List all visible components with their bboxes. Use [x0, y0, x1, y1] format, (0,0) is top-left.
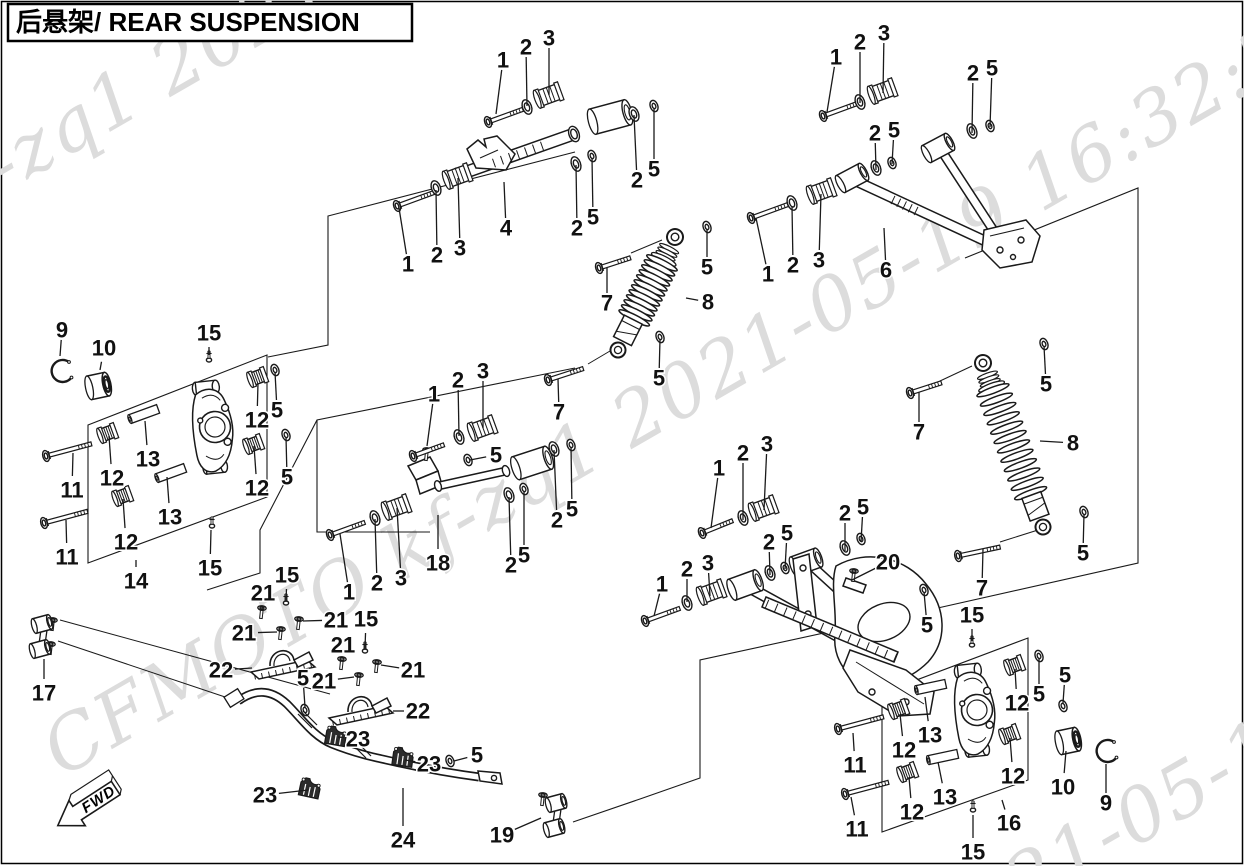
- callout-number: 20: [876, 550, 900, 575]
- callout-12: 12: [892, 714, 916, 763]
- callout-1: 1: [496, 48, 509, 115]
- callout-21: 21: [381, 658, 425, 683]
- callout-number: 21: [331, 633, 355, 658]
- callout-number: 5: [271, 398, 283, 423]
- callout-number: 5: [1077, 541, 1089, 566]
- callout-2: 2: [631, 115, 643, 193]
- callout-number: 1: [830, 45, 842, 70]
- callout-17: 17: [32, 659, 56, 706]
- callout-number: 21: [324, 608, 348, 633]
- part-circlip-right: [1097, 740, 1118, 762]
- callout-number: 7: [601, 291, 613, 316]
- callout-15: 15: [960, 603, 984, 642]
- callout-number: 1: [713, 456, 725, 481]
- part-bearing-left: [83, 372, 113, 401]
- callout-number: 5: [701, 255, 713, 280]
- callout-number: 14: [124, 569, 149, 594]
- callout-number: 5: [888, 118, 900, 143]
- callout-number: 6: [880, 258, 892, 283]
- callout-5: 5: [701, 229, 713, 280]
- part-end-link-left: [28, 614, 54, 659]
- callout-number: 7: [913, 420, 925, 445]
- callout-12: 12: [1005, 669, 1029, 716]
- callout-1: 1: [711, 456, 725, 529]
- callout-15: 15: [197, 321, 221, 356]
- callout-10: 10: [92, 336, 116, 371]
- callout-14: 14: [124, 560, 149, 594]
- callout-number: 2: [551, 508, 563, 533]
- callout-number: 2: [681, 557, 693, 582]
- callout-number: 5: [566, 497, 578, 522]
- callout-12: 12: [114, 499, 138, 555]
- callout-1: 1: [427, 382, 440, 447]
- callout-number: 4: [500, 216, 513, 241]
- part-lower-swing-arm: [725, 547, 942, 716]
- callout-number: 12: [245, 476, 269, 501]
- callout-11: 11: [843, 733, 866, 778]
- callout-number: 13: [918, 723, 942, 748]
- callout-13: 13: [158, 477, 182, 530]
- callout-22: 22: [393, 699, 430, 724]
- callout-2: 2: [431, 190, 443, 268]
- callout-number: 21: [232, 621, 256, 646]
- callout-5: 5: [1059, 663, 1071, 704]
- callout-number: 12: [245, 408, 269, 433]
- callout-2: 2: [967, 61, 979, 134]
- callout-11: 11: [845, 797, 868, 842]
- callout-7: 7: [976, 549, 988, 601]
- callout-number: 12: [900, 800, 924, 825]
- callout-1: 1: [756, 218, 774, 287]
- callout-number: 16: [997, 811, 1021, 836]
- callout-4: 4: [500, 182, 513, 241]
- callout-1: 1: [399, 208, 414, 277]
- callout-number: 15: [197, 321, 221, 346]
- callout-5: 5: [587, 158, 599, 230]
- callout-number: 5: [1033, 682, 1045, 707]
- callout-number: 5: [648, 157, 660, 182]
- callout-7: 7: [553, 379, 565, 425]
- callout-1: 1: [827, 45, 842, 113]
- callout-number: 11: [55, 545, 78, 570]
- callout-number: 5: [297, 666, 309, 691]
- callout-8: 8: [686, 290, 714, 315]
- callout-number: 5: [653, 366, 665, 391]
- callout-number: 9: [56, 318, 68, 343]
- callout-number: 3: [477, 359, 489, 384]
- callout-number: 2: [431, 243, 443, 268]
- callout-2: 2: [520, 35, 532, 107]
- callout-number: 13: [136, 447, 160, 472]
- callout-5: 5: [297, 666, 309, 708]
- title-box: 后悬架/ REAR SUSPENSION: [8, 4, 412, 41]
- part-circlip-left: [52, 360, 73, 382]
- callout-number: 5: [490, 443, 502, 468]
- callout-2: 2: [737, 441, 749, 521]
- page-title: 后悬架/ REAR SUSPENSION: [16, 7, 360, 37]
- callout-10: 10: [1051, 751, 1075, 800]
- parts-diagram-page: kf-zq1 2021 CFMOTO kf-zq1 2021-05-19 16:…: [0, 0, 1244, 866]
- callout-number: 2: [631, 168, 643, 193]
- callout-number: 2: [371, 571, 383, 596]
- callout-number: 12: [892, 738, 916, 763]
- callout-number: 15: [275, 563, 299, 588]
- callout-21: 21: [312, 669, 354, 694]
- callout-3: 3: [454, 178, 466, 261]
- callout-number: 22: [209, 658, 233, 683]
- callout-8: 8: [1040, 431, 1079, 456]
- callout-number: 11: [845, 817, 868, 842]
- callout-15: 15: [198, 530, 222, 581]
- callout-number: 23: [346, 727, 370, 752]
- callout-number: 15: [198, 556, 222, 581]
- callout-7: 7: [601, 268, 613, 316]
- callout-2: 2: [681, 557, 693, 603]
- callout-number: 15: [354, 607, 378, 632]
- callout-number: 2: [520, 35, 532, 60]
- callout-number: 3: [395, 566, 407, 591]
- callout-number: 2: [763, 530, 775, 555]
- callout-number: 1: [402, 252, 414, 277]
- callout-number: 10: [92, 336, 116, 361]
- callout-number: 2: [737, 441, 749, 466]
- callout-number: 5: [1040, 372, 1052, 397]
- part-knuckle-right: [950, 662, 999, 758]
- callout-number: 1: [428, 382, 440, 407]
- callout-number: 21: [251, 581, 275, 606]
- callout-number: 22: [406, 699, 430, 724]
- callout-number: 11: [60, 478, 83, 503]
- callout-number: 3: [813, 248, 825, 273]
- callout-number: 5: [857, 495, 869, 520]
- callout-number: 7: [553, 400, 565, 425]
- part-knuckle-left: [188, 379, 237, 475]
- callout-1: 1: [654, 572, 668, 617]
- callout-16: 16: [997, 800, 1021, 836]
- callout-19: 19: [490, 818, 541, 848]
- callout-number: 2: [967, 61, 979, 86]
- callout-number: 23: [253, 783, 277, 808]
- part-end-link-right: [542, 793, 568, 838]
- callout-number: 5: [518, 543, 530, 568]
- callout-13: 13: [933, 762, 957, 810]
- callout-11: 11: [55, 520, 78, 570]
- callout-number: 5: [471, 743, 483, 768]
- callout-number: 12: [1001, 764, 1025, 789]
- callout-15: 15: [961, 815, 985, 865]
- callout-5: 5: [454, 743, 483, 768]
- callout-5: 5: [271, 372, 283, 423]
- callout-12: 12: [1001, 738, 1025, 789]
- callout-number: 23: [417, 752, 441, 777]
- part-bearing-right: [1053, 727, 1083, 756]
- callout-number: 15: [960, 603, 984, 628]
- fwd-label: FWD: [79, 782, 119, 816]
- callout-number: 11: [843, 753, 866, 778]
- part-upper-link-rod: [451, 99, 635, 184]
- callout-2: 2: [787, 206, 799, 278]
- callout-number: 2: [452, 368, 464, 393]
- callout-number: 2: [869, 121, 881, 146]
- callout-3: 3: [813, 194, 825, 273]
- callout-number: 19: [490, 823, 514, 848]
- callout-number: 15: [961, 840, 985, 865]
- callout-5: 5: [648, 109, 660, 182]
- callout-number: 8: [1067, 431, 1079, 456]
- callout-number: 5: [921, 613, 933, 638]
- callout-number: 5: [587, 205, 599, 230]
- callout-number: 3: [878, 21, 890, 46]
- callout-12: 12: [100, 436, 124, 491]
- callout-number: 7: [976, 576, 988, 601]
- callout-number: 1: [497, 48, 509, 73]
- callout-21: 21: [331, 633, 355, 660]
- callout-number: 1: [762, 262, 774, 287]
- callout-number: 5: [986, 56, 998, 81]
- callout-9: 9: [56, 318, 68, 357]
- part-clamp-bracket-right: [329, 697, 393, 726]
- callout-number: 1: [343, 580, 355, 605]
- callout-9: 9: [1100, 764, 1112, 816]
- callout-number: 24: [391, 828, 416, 853]
- callout-number: 2: [854, 30, 866, 55]
- callout-number: 17: [32, 681, 56, 706]
- callout-2: 2: [571, 165, 583, 241]
- callout-number: 12: [114, 530, 138, 555]
- callout-number: 21: [312, 669, 336, 694]
- callout-11: 11: [60, 453, 83, 503]
- callout-2: 2: [452, 368, 464, 437]
- callout-number: 13: [933, 785, 957, 810]
- callout-number: 3: [702, 551, 714, 576]
- callout-12: 12: [245, 383, 269, 433]
- callout-number: 5: [781, 521, 793, 546]
- callout-number: 5: [1059, 663, 1071, 688]
- callout-number: 2: [505, 553, 517, 578]
- callout-number: 18: [426, 551, 450, 576]
- callout-13: 13: [136, 421, 160, 472]
- callout-number: 2: [839, 501, 851, 526]
- callout-5: 5: [653, 339, 665, 391]
- callout-24: 24: [391, 788, 416, 853]
- callout-number: 2: [571, 216, 583, 241]
- callout-number: 3: [543, 26, 555, 51]
- rear-suspension-diagram: kf-zq1 2021 CFMOTO kf-zq1 2021-05-19 16:…: [0, 0, 1244, 866]
- callout-number: 2: [787, 253, 799, 278]
- callout-2: 2: [854, 30, 866, 104]
- callout-5: 5: [1033, 658, 1045, 707]
- callout-number: 3: [454, 236, 466, 261]
- callout-number: 21: [401, 658, 425, 683]
- callout-12: 12: [900, 777, 924, 825]
- callout-number: 5: [281, 465, 293, 490]
- callout-number: 8: [702, 290, 714, 315]
- callout-5: 5: [986, 56, 998, 128]
- callout-5: 5: [1040, 346, 1052, 397]
- callout-5: 5: [1077, 514, 1089, 566]
- callout-7: 7: [913, 392, 925, 445]
- callout-number: 12: [1005, 691, 1029, 716]
- callout-number: 12: [100, 466, 124, 491]
- callout-number: 1: [656, 572, 668, 597]
- callout-number: 9: [1100, 791, 1112, 816]
- callout-number: 3: [761, 432, 773, 457]
- callout-5: 5: [281, 437, 293, 490]
- callout-number: 13: [158, 505, 182, 530]
- callout-number: 10: [1051, 775, 1075, 800]
